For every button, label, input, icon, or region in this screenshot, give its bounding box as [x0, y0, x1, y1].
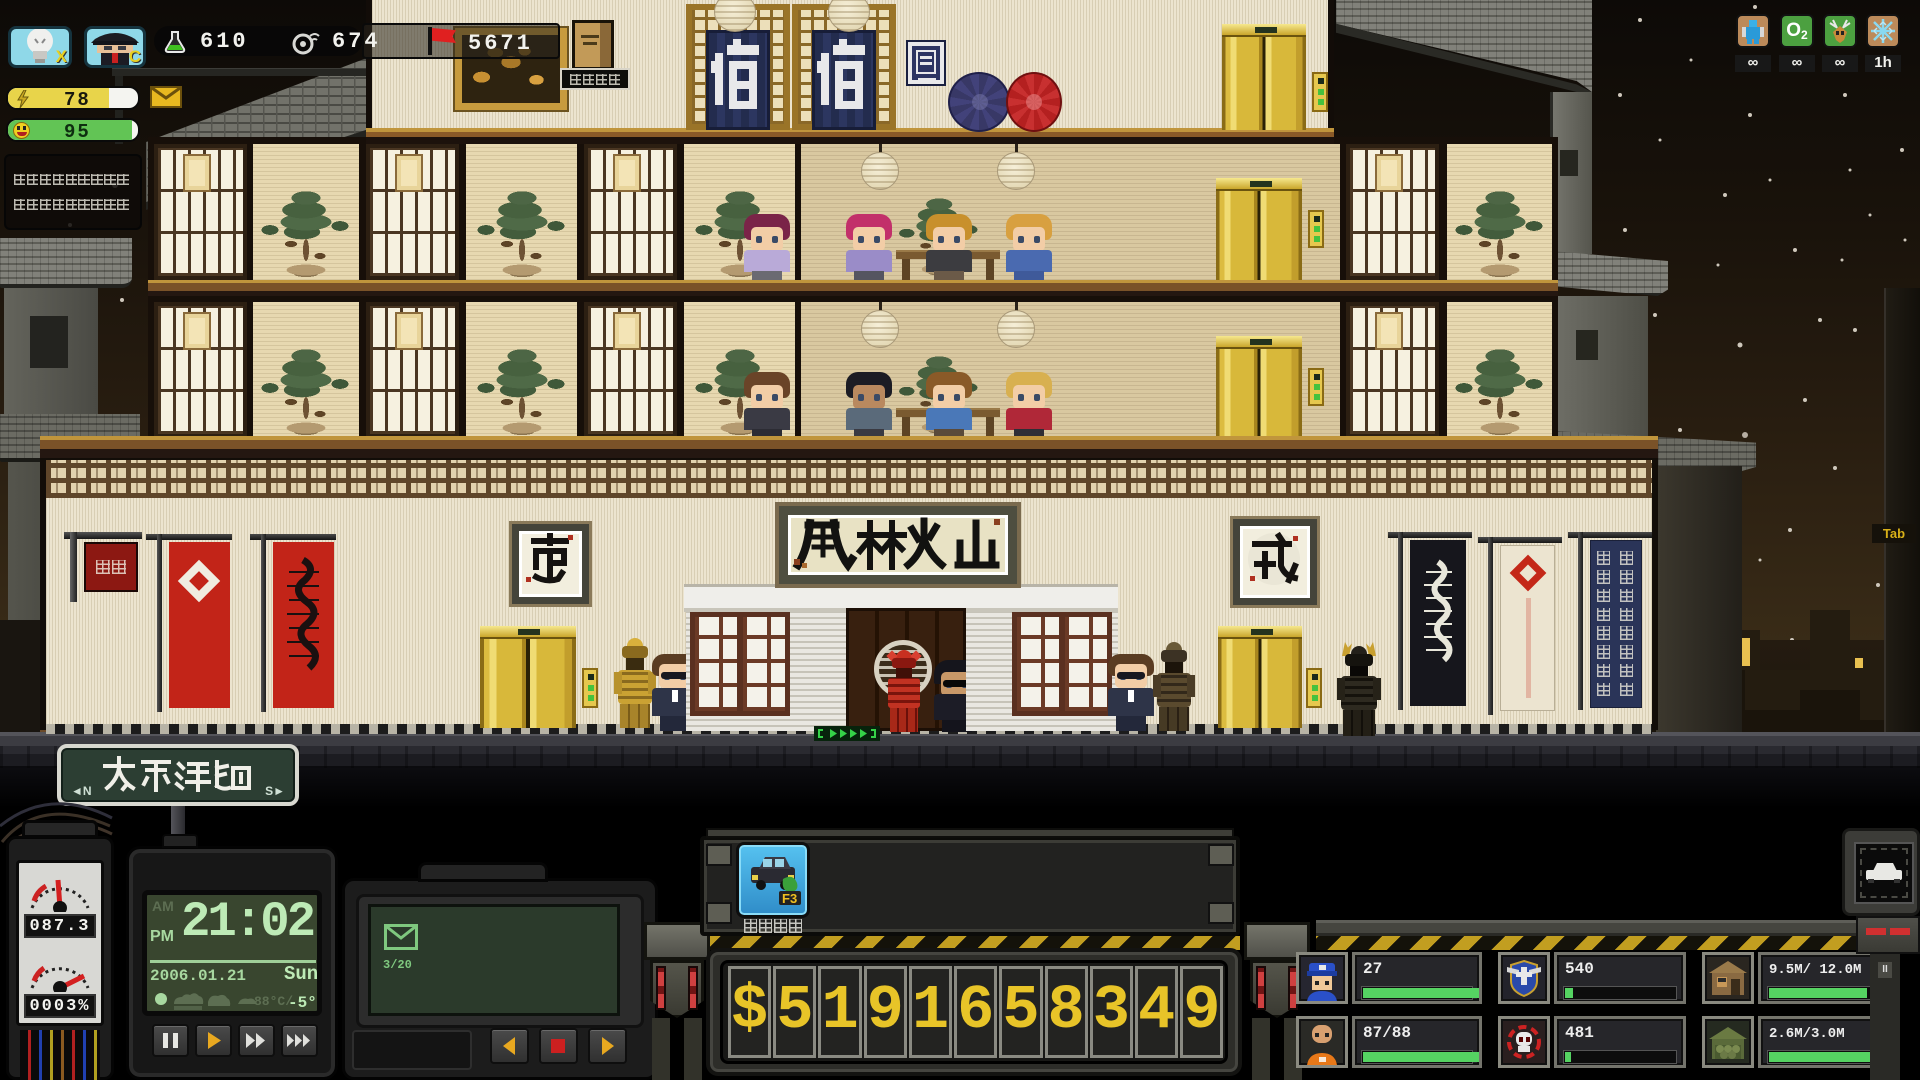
- svg-text:F3: F3: [782, 891, 797, 906]
- svg-text:-5°C: -5°C: [288, 994, 316, 1012]
